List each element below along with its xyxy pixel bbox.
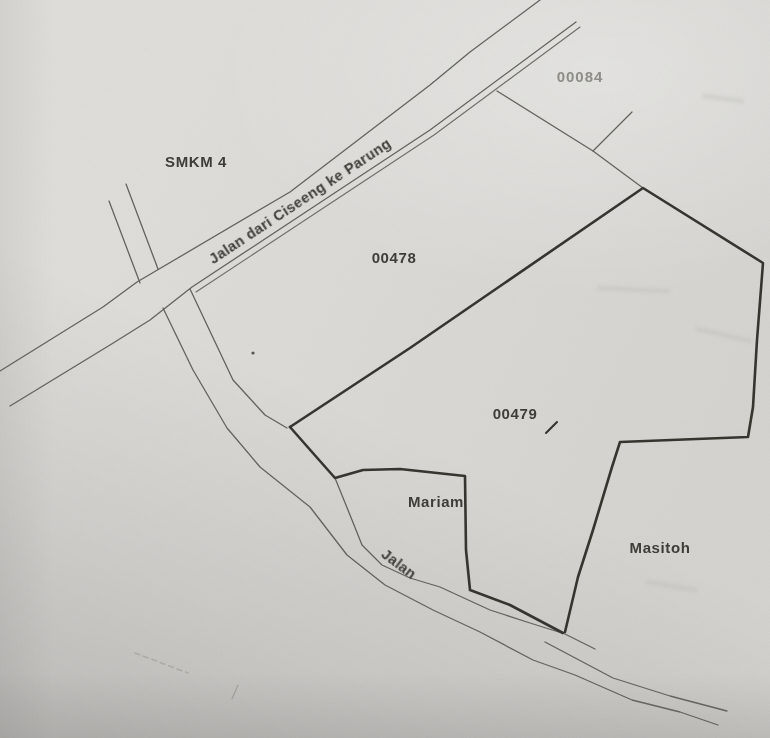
pointer-mark <box>546 422 557 433</box>
main-road-label: Jalan dari Ciseeng ke Parung <box>206 135 394 267</box>
mariam-parcel-label: Mariam <box>408 493 464 510</box>
parcel-00478-label: 00478 <box>372 249 417 266</box>
side-road-west-edge <box>109 201 140 283</box>
parcel-00479-label: 00479 <box>493 405 538 422</box>
parcel-00084-boundary <box>497 91 643 188</box>
parcel-00084-label: 00084 <box>557 68 604 85</box>
side-road-east-edge <box>126 184 158 269</box>
smudge-mark <box>705 96 742 101</box>
pencil-tick <box>232 685 238 699</box>
scanned-map-document: SMKM 4 00084 Jalan dari Ciseeng ke Parun… <box>0 0 770 738</box>
parcel-mariam-boundary <box>290 427 563 633</box>
smudge-mark <box>600 288 668 291</box>
lower-road-sw-edge <box>163 308 718 725</box>
parcel-00084-boundary-spur <box>593 112 632 151</box>
lower-road-ne-edge-upper <box>190 289 287 428</box>
smudge-mark <box>698 329 750 341</box>
ink-dot <box>251 351 254 354</box>
masitoh-parcel-label: Masitoh <box>630 539 691 556</box>
school-label: SMKM 4 <box>165 153 227 170</box>
bleed-through-smudges <box>600 96 750 590</box>
lower-road-label: Jalan <box>378 546 419 582</box>
cadastral-sketch-map: SMKM 4 00084 Jalan dari Ciseeng ke Parun… <box>0 0 770 738</box>
smudge-mark <box>648 582 695 590</box>
pencil-mark <box>135 653 188 673</box>
